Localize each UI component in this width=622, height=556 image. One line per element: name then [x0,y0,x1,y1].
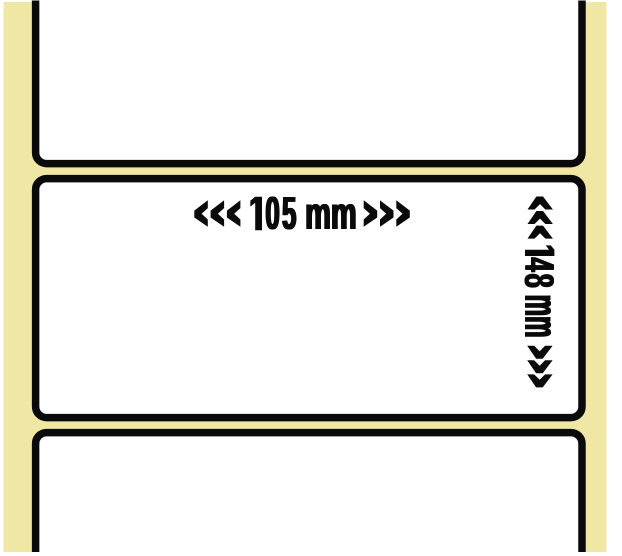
svg-text:05: 05 [266,187,299,239]
svg-text:mm: mm [306,188,358,240]
svg-text:48: 48 [515,258,561,290]
svg-text:mm: mm [513,295,566,338]
